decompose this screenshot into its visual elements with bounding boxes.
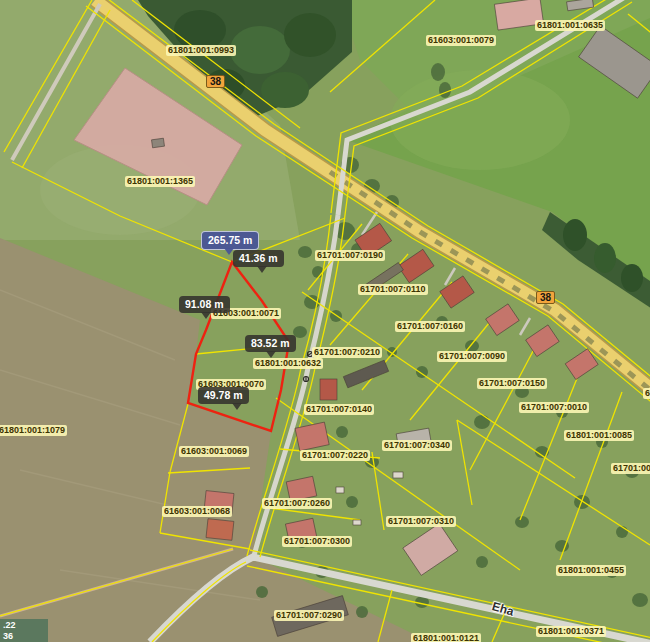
parcel-label[interactable]: 61801:001:0632 [253, 358, 323, 369]
building [320, 379, 337, 400]
parcel-label[interactable]: 61701:00 [611, 463, 650, 474]
parcel-label[interactable]: 61701:007:0220 [300, 450, 370, 461]
parcel-label[interactable]: 61603:001:0079 [426, 35, 496, 46]
parcel-label[interactable]: 61801:001:0121 [411, 633, 481, 642]
building [206, 519, 234, 541]
parcel-label[interactable]: 61801:001:0993 [166, 45, 236, 56]
map-canvas[interactable]: 61801:001:099361603:001:007961801:001:06… [0, 0, 650, 642]
parcel-label[interactable]: 61701:007:0190 [315, 250, 385, 261]
parcel-label[interactable]: 61701:007:0310 [386, 516, 456, 527]
parcel-label[interactable]: 61801:001:0085 [564, 430, 634, 441]
parcel-label[interactable]: 61701:007:0260 [262, 498, 332, 509]
parcel-label[interactable]: 61701:007:0210 [312, 347, 382, 358]
shed [336, 487, 344, 493]
parcel-label[interactable]: 61603:001:0069 [179, 446, 249, 457]
parcel-label[interactable]: 61603:001:0071 [211, 308, 281, 319]
parcel-label[interactable]: 61701:007:0140 [304, 404, 374, 415]
parcel-label[interactable]: 61603:001:0068 [162, 506, 232, 517]
parcel-label[interactable]: 61701:007:0090 [437, 351, 507, 362]
parcel-label[interactable]: 61801:001:0371 [536, 626, 606, 637]
building [152, 138, 165, 148]
parcel-label[interactable]: 61603:001:0070 [196, 379, 266, 390]
parcel-label[interactable]: 61801:001:0455 [556, 565, 626, 576]
shed [353, 520, 361, 525]
parcel-label[interactable]: 61701:007:0150 [477, 378, 547, 389]
parcel-label[interactable]: 61701:007:0110 [358, 284, 428, 295]
parcel-label[interactable]: 61701:007:0340 [382, 440, 452, 451]
parcel-label[interactable]: 61701:007:0300 [282, 536, 352, 547]
parcel-label[interactable]: 61701:007:0160 [395, 321, 465, 332]
parcel-label[interactable]: 61801:001:0635 [535, 20, 605, 31]
shed [393, 472, 403, 478]
parcel-label[interactable]: 61701:007:0010 [519, 402, 589, 413]
parcel-label[interactable]: 61701:007:0290 [274, 610, 344, 621]
parcel-label[interactable]: 6 [643, 388, 650, 399]
parcel-label[interactable]: 61801:001:1365 [125, 176, 195, 187]
parcel-label[interactable]: 61801:001:1079 [0, 425, 67, 436]
